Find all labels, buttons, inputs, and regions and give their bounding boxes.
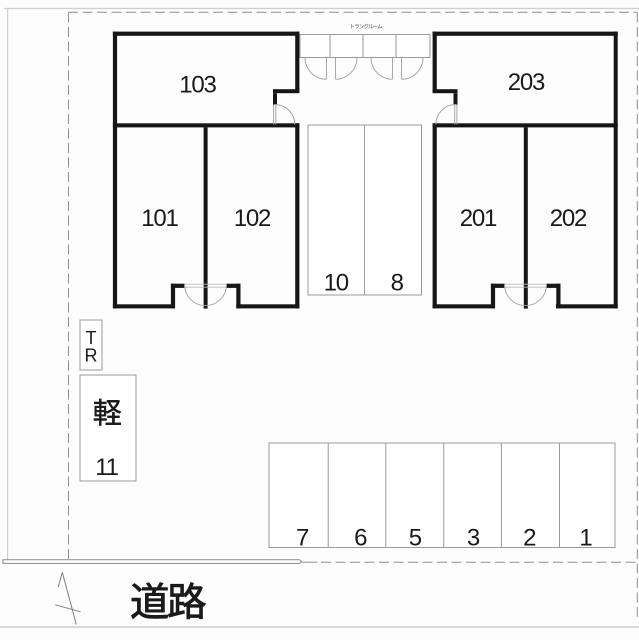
svg-text:202: 202 bbox=[550, 205, 587, 232]
svg-text:3: 3 bbox=[467, 524, 480, 551]
svg-text:11: 11 bbox=[95, 454, 118, 481]
svg-text:5: 5 bbox=[409, 524, 422, 551]
svg-text:6: 6 bbox=[354, 524, 367, 551]
svg-text:R: R bbox=[85, 345, 98, 365]
svg-text:102: 102 bbox=[234, 205, 271, 232]
svg-text:203: 203 bbox=[508, 69, 545, 96]
svg-text:101: 101 bbox=[141, 205, 178, 232]
svg-text:2: 2 bbox=[523, 524, 536, 551]
svg-text:1: 1 bbox=[579, 524, 592, 551]
svg-text:103: 103 bbox=[179, 71, 216, 98]
svg-text:201: 201 bbox=[460, 205, 497, 232]
svg-text:7: 7 bbox=[296, 524, 309, 551]
svg-text:8: 8 bbox=[391, 269, 404, 296]
svg-text:10: 10 bbox=[324, 269, 349, 296]
